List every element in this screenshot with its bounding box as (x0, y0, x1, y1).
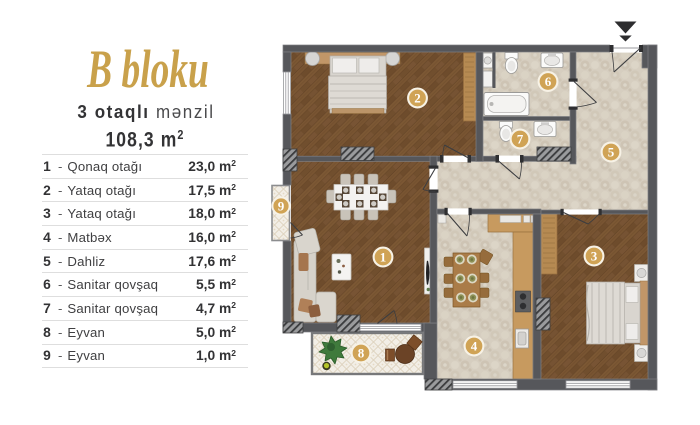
svg-text:5: 5 (608, 145, 615, 160)
svg-text:9: 9 (278, 199, 285, 214)
svg-text:2: 2 (414, 91, 421, 106)
svg-text:3: 3 (591, 249, 598, 264)
svg-text:1: 1 (380, 250, 387, 265)
svg-text:8: 8 (358, 346, 365, 361)
svg-text:4: 4 (471, 339, 478, 354)
svg-text:6: 6 (545, 74, 552, 89)
svg-text:7: 7 (517, 132, 524, 147)
